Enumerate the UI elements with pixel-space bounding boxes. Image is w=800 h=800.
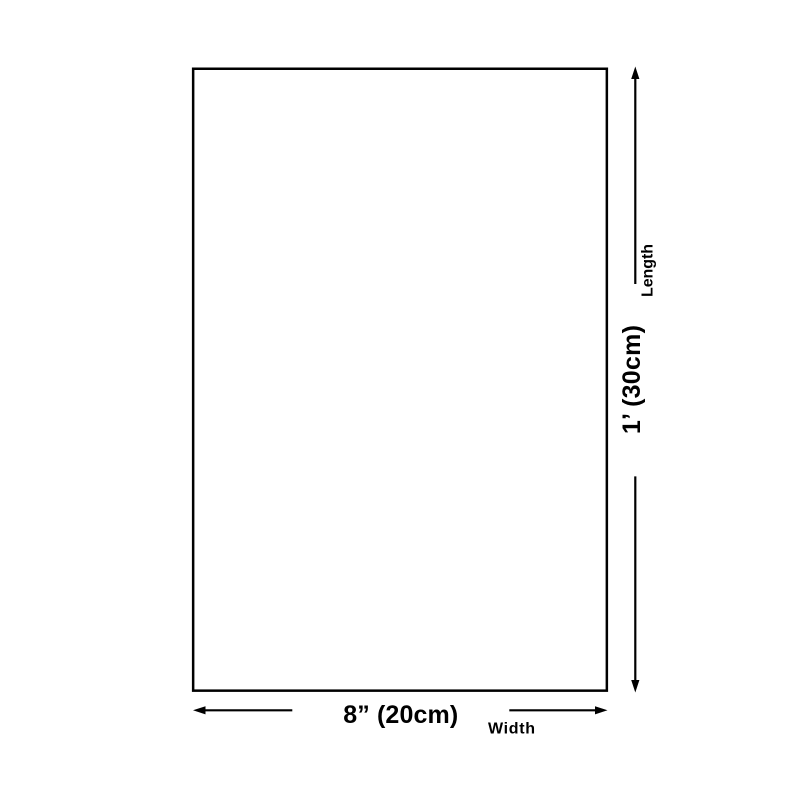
svg-text:8” (20cm): 8” (20cm) — [343, 701, 458, 729]
svg-text:Length: Length — [640, 244, 657, 297]
svg-text:1’ (30cm): 1’ (30cm) — [618, 325, 646, 434]
svg-text:Width: Width — [488, 720, 535, 737]
